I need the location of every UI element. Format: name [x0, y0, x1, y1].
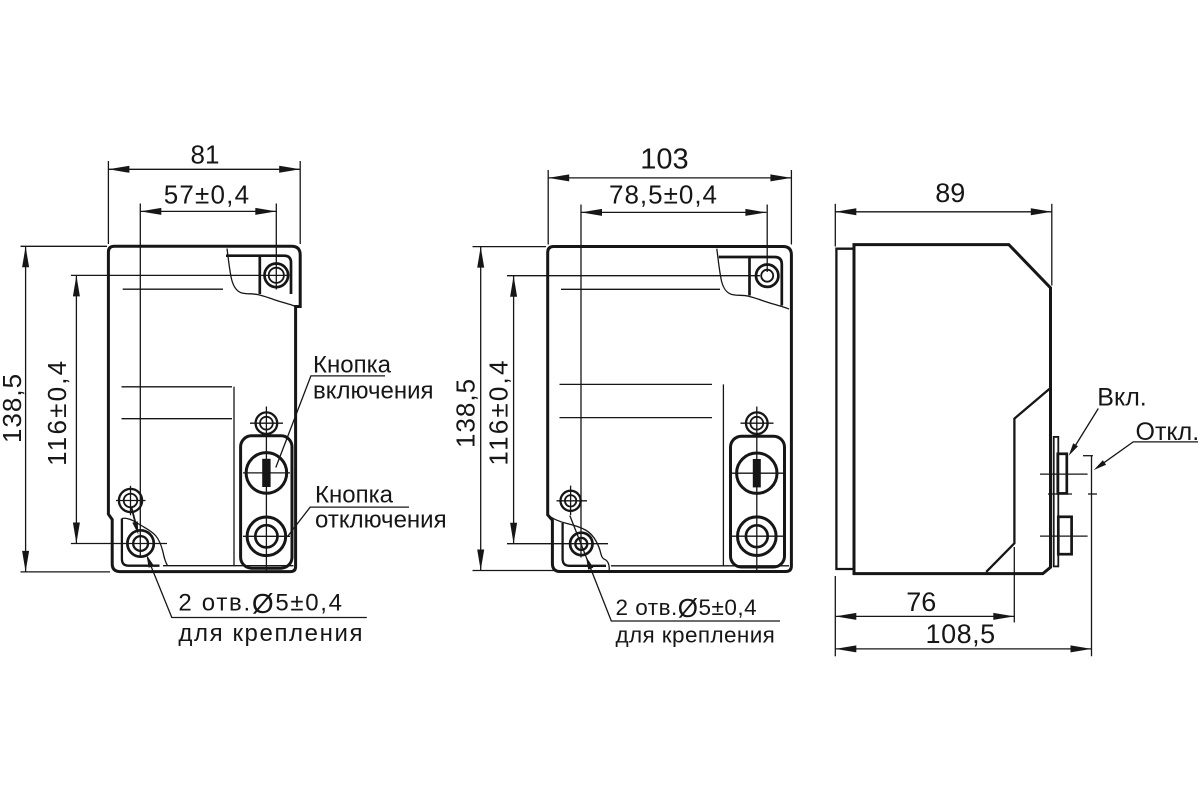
svg-text:57±0,4: 57±0,4: [164, 179, 251, 209]
svg-text:138,5: 138,5: [0, 373, 27, 443]
svg-text:включения: включения: [313, 377, 434, 404]
svg-text:Кнопка: Кнопка: [313, 352, 392, 379]
svg-text:81: 81: [191, 140, 220, 170]
svg-text:89: 89: [935, 178, 965, 208]
svg-text:Вкл.: Вкл.: [1097, 384, 1146, 412]
svg-text:2 отв.Ø5±0,4: 2 отв.Ø5±0,4: [616, 593, 758, 623]
svg-text:103: 103: [640, 143, 688, 175]
svg-text:для крепления: для крепления: [616, 622, 776, 647]
svg-text:76: 76: [906, 587, 936, 617]
svg-text:2 отв.Ø5±0,4: 2 отв.Ø5±0,4: [178, 588, 343, 619]
svg-text:116±0,4: 116±0,4: [42, 359, 72, 466]
svg-text:для крепления: для крепления: [178, 620, 364, 647]
svg-text:108,5: 108,5: [926, 619, 996, 649]
svg-text:138,5: 138,5: [451, 378, 481, 448]
svg-text:116±0,4: 116±0,4: [484, 358, 514, 465]
svg-text:Кнопка: Кнопка: [315, 482, 394, 509]
svg-text:78,5±0,4: 78,5±0,4: [609, 179, 718, 209]
svg-text:отключения: отключения: [315, 507, 447, 534]
